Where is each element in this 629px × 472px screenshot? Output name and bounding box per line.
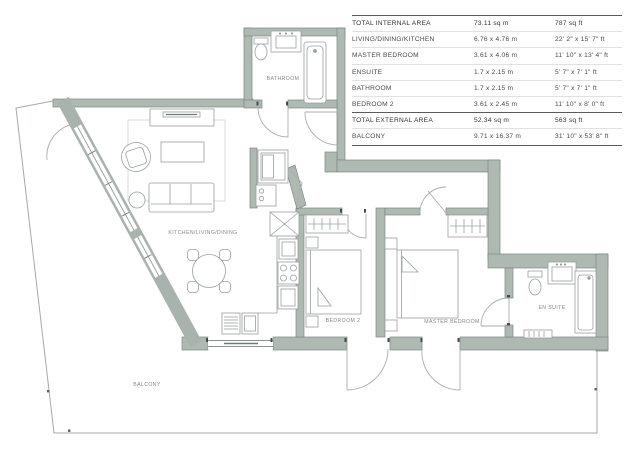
area-cell-metric: 3.61 x 2.45 m — [474, 101, 555, 108]
dining-set — [188, 250, 231, 293]
bathroom-toilet — [254, 38, 268, 60]
area-table-row: MASTER BEDROOM3.61 x 4.06 m11' 10" x 13'… — [352, 48, 622, 64]
hall-closet — [256, 150, 288, 206]
bedroom2-bed — [306, 237, 361, 327]
area-cell-imperial: 787 sq ft — [555, 20, 622, 27]
area-cell-imperial: 31' 10" x 53' 8" ft — [555, 133, 622, 140]
area-cell-metric: 1.7 x 2.15 m — [474, 69, 555, 76]
coffee-table — [161, 142, 204, 162]
area-table-row: BALCONY9.71 x 16.37 m31' 10" x 53' 8" ft — [352, 129, 622, 144]
glazed-diagonal-wall — [63, 100, 196, 344]
label-balcony: BALCONY — [133, 382, 161, 388]
living-balcony-slider — [208, 338, 273, 350]
label-bathroom: BATHROOM — [267, 76, 300, 82]
bedroom2-wardrobe — [306, 215, 348, 233]
ensuite-sink — [548, 262, 576, 284]
ensuite-shower — [575, 271, 596, 333]
bathtub — [304, 42, 326, 103]
area-cell-label: TOTAL EXTERNAL AREA — [352, 117, 474, 124]
area-table-row: LIVING/DINING/KITCHEN6.76 x 4.76 m22' 2"… — [352, 32, 622, 48]
area-table-row: TOTAL EXTERNAL AREA52.34 sq m563 sq ft — [352, 113, 622, 129]
area-cell-metric: 6.76 x 4.76 m — [474, 36, 555, 43]
armchair — [118, 139, 155, 176]
ensuite-mat — [524, 330, 552, 338]
area-cell-label: BALCONY — [352, 133, 474, 140]
master-wardrobe — [448, 215, 487, 237]
area-cell-metric: 73.11 sq m — [474, 20, 555, 27]
label-kitchen-living-dining: KITCHEN/LIVING/DINING — [168, 230, 237, 236]
area-cell-imperial: 5' 7" x 7' 1" ft — [555, 85, 622, 92]
area-cell-label: LIVING/DINING/KITCHEN — [352, 36, 474, 43]
area-table-row: BEDROOM 23.61 x 2.45 m11' 10" x 8' 0" ft — [352, 97, 622, 113]
bathroom-sink — [271, 31, 301, 52]
area-cell-imperial: 563 sq ft — [555, 117, 622, 124]
floorplan-page: BATHROOM KITCHEN/LIVING/DINING BEDROOM 2… — [0, 0, 629, 472]
kitchen-units — [258, 212, 299, 313]
area-cell-label: BEDROOM 2 — [352, 101, 474, 108]
kitchen-appliances — [222, 313, 258, 334]
area-cell-label: ENSUITE — [352, 69, 474, 76]
master-bed — [385, 238, 458, 331]
area-table-row: TOTAL INTERNAL AREA73.11 sq m787 sq ft — [352, 16, 622, 32]
area-table-row: ENSUITE1.7 x 2.15 m5' 7" x 7' 1" ft — [352, 65, 622, 81]
label-bedroom2: BEDROOM 2 — [326, 318, 361, 324]
area-cell-metric: 9.71 x 16.37 m — [474, 133, 555, 140]
area-table-row: BATHROOM1.7 x 2.15 m5' 7" x 7' 1" ft — [352, 81, 622, 97]
area-cell-metric: 1.7 x 2.15 m — [474, 85, 555, 92]
area-cell-label: MASTER BEDROOM — [352, 52, 474, 59]
area-cell-label: TOTAL INTERNAL AREA — [352, 20, 474, 27]
balcony-fixing-marks — [47, 388, 597, 432]
ensuite-toilet — [528, 271, 542, 295]
tv-unit — [150, 109, 214, 126]
area-cell-imperial: 11' 10" x 8' 0" ft — [555, 101, 622, 108]
area-table: TOTAL INTERNAL AREA73.11 sq m787 sq ftLI… — [352, 15, 622, 146]
sofa — [149, 183, 214, 212]
area-cell-label: BATHROOM — [352, 85, 474, 92]
area-cell-imperial: 11' 10" x 13' 4" ft — [555, 52, 622, 59]
label-master-bedroom: MASTER BEDROOM — [424, 319, 479, 325]
area-cell-imperial: 5' 7" x 7' 1" ft — [555, 69, 622, 76]
side-table — [129, 192, 145, 208]
area-cell-imperial: 22' 2" x 15' 7" ft — [555, 36, 622, 43]
label-ensuite: EN SUITE — [538, 305, 565, 311]
area-cell-metric: 52.34 sq m — [474, 117, 555, 124]
area-cell-metric: 3.61 x 4.06 m — [474, 52, 555, 59]
